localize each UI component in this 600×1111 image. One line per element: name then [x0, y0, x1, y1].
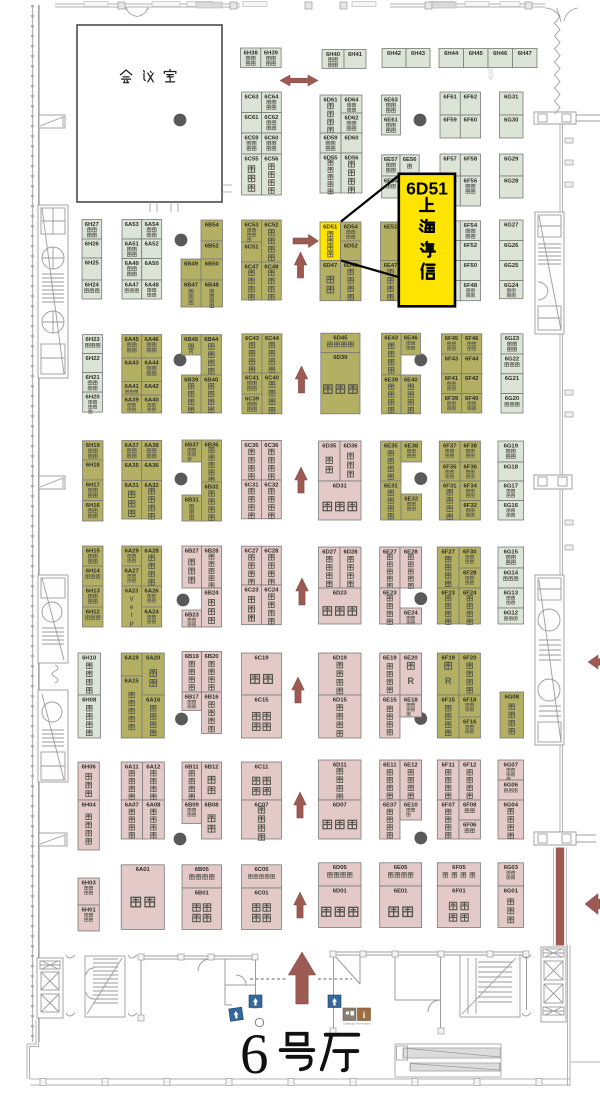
svg-text:6H40: 6H40 [326, 52, 341, 58]
svg-text:6F34: 6F34 [463, 483, 477, 489]
svg-text:6B12: 6B12 [204, 764, 219, 770]
svg-text:6D31: 6D31 [333, 483, 348, 489]
svg-text:6F52: 6F52 [464, 243, 478, 249]
svg-text:6C15: 6C15 [254, 697, 269, 703]
svg-text:6G22: 6G22 [505, 356, 520, 362]
svg-text:6H27: 6H27 [85, 222, 100, 228]
svg-text:6C55: 6C55 [244, 156, 259, 162]
svg-text:6H46: 6H46 [493, 51, 508, 57]
svg-text:6A45: 6A45 [125, 337, 140, 343]
svg-text:6A29: 6A29 [125, 548, 140, 554]
svg-text:6A37: 6A37 [125, 443, 140, 449]
svg-text:6E20: 6E20 [404, 655, 418, 661]
svg-text:6E63: 6E63 [384, 97, 398, 103]
svg-text:6F41: 6F41 [445, 376, 459, 382]
svg-text:6F11: 6F11 [442, 762, 456, 768]
svg-text:6H20: 6H20 [86, 395, 101, 401]
svg-text:6G16: 6G16 [504, 503, 519, 509]
svg-text:6C64: 6C64 [264, 94, 279, 100]
svg-text:6G03: 6G03 [504, 865, 519, 871]
svg-text:6F36: 6F36 [463, 464, 477, 470]
svg-text:6F45: 6F45 [445, 336, 459, 342]
svg-text:6H41: 6H41 [348, 52, 363, 58]
svg-text:6A11: 6A11 [125, 764, 139, 770]
svg-text:6F19: 6F19 [441, 655, 455, 661]
svg-text:6B19: 6B19 [185, 654, 200, 660]
svg-text:6H25: 6H25 [85, 260, 100, 266]
svg-text:6C62: 6C62 [264, 115, 279, 121]
svg-text:6C59: 6C59 [244, 135, 259, 141]
svg-text:6A31: 6A31 [125, 483, 140, 489]
svg-text:6D07: 6D07 [333, 802, 348, 808]
svg-text:6A07: 6A07 [125, 802, 140, 808]
svg-text:6D35: 6D35 [322, 443, 337, 449]
svg-text:6H18: 6H18 [86, 462, 101, 468]
svg-text:6G19: 6G19 [504, 443, 519, 449]
svg-text:6F30: 6F30 [463, 549, 477, 555]
svg-text:6D60: 6D60 [344, 135, 359, 141]
svg-text:6B27: 6B27 [185, 548, 200, 554]
svg-text:6C60: 6C60 [264, 135, 279, 141]
svg-text:6C48: 6C48 [264, 264, 279, 270]
svg-text:6C32: 6C32 [264, 482, 279, 488]
svg-text:6B09: 6B09 [185, 802, 200, 808]
svg-text:6B49: 6B49 [184, 261, 199, 267]
svg-text:6F01: 6F01 [452, 888, 466, 894]
svg-text:6F32: 6F32 [463, 503, 477, 509]
svg-text:6H24: 6H24 [85, 282, 100, 288]
svg-text:6A38: 6A38 [145, 443, 160, 449]
svg-text:6H17: 6H17 [86, 482, 101, 488]
svg-text:6C35: 6C35 [244, 443, 259, 449]
svg-text:6C51: 6C51 [244, 244, 259, 250]
svg-text:6A53: 6A53 [125, 222, 140, 228]
svg-text:6F61: 6F61 [443, 94, 457, 100]
svg-text:6D59: 6D59 [323, 135, 338, 141]
svg-text:6F39: 6F39 [445, 396, 459, 402]
svg-text:6G26: 6G26 [504, 243, 519, 249]
svg-text:6G12: 6G12 [504, 610, 519, 616]
svg-text:6D36: 6D36 [343, 443, 358, 449]
svg-text:6H47: 6H47 [518, 51, 533, 57]
svg-text:6A23: 6A23 [125, 588, 138, 594]
svg-text:6A08: 6A08 [146, 802, 161, 808]
svg-text:6G29: 6G29 [504, 156, 519, 162]
svg-text:6G13: 6G13 [504, 590, 519, 596]
svg-text:6F06: 6F06 [463, 822, 477, 828]
svg-text:V: V [129, 596, 134, 603]
svg-text:6A49: 6A49 [125, 261, 140, 267]
svg-text:6G31: 6G31 [504, 94, 519, 100]
svg-text:6G14: 6G14 [504, 570, 519, 576]
svg-text:6E31: 6E31 [384, 483, 398, 489]
svg-text:6H39: 6H39 [264, 50, 279, 56]
svg-text:6A51: 6A51 [125, 241, 140, 247]
svg-text:6G04: 6G04 [504, 802, 519, 808]
svg-text:6A15: 6A15 [125, 678, 140, 684]
svg-text:6A40: 6A40 [145, 398, 160, 404]
svg-text:6A27: 6A27 [125, 568, 140, 574]
svg-text:6B01: 6B01 [195, 890, 210, 896]
svg-text:6D54: 6D54 [344, 224, 359, 230]
svg-text:6H19: 6H19 [86, 443, 101, 449]
svg-text:6E10: 6E10 [404, 802, 418, 808]
svg-text:6C52: 6C52 [264, 222, 279, 228]
svg-text:6G17: 6G17 [504, 483, 519, 489]
svg-text:6A28: 6A28 [145, 548, 160, 554]
svg-text:6D62: 6D62 [344, 115, 359, 121]
svg-text:6D05: 6D05 [333, 865, 348, 871]
svg-text:l: l [131, 612, 133, 619]
svg-text:6E12: 6E12 [404, 762, 418, 768]
svg-text:6E40: 6E40 [404, 377, 418, 383]
svg-text:6C47: 6C47 [244, 264, 259, 270]
svg-text:6A44: 6A44 [145, 360, 160, 366]
svg-text:6F38: 6F38 [463, 443, 477, 449]
svg-text:6A26: 6A26 [145, 588, 160, 594]
svg-text:6B48: 6B48 [205, 282, 220, 288]
svg-text:6B31: 6B31 [185, 497, 200, 503]
svg-text:R: R [445, 676, 452, 686]
svg-text:6C01: 6C01 [254, 890, 269, 896]
svg-text:6C53: 6C53 [244, 222, 259, 228]
svg-text:6D11: 6D11 [333, 762, 347, 768]
svg-text:6E35: 6E35 [384, 443, 398, 449]
svg-text:p: p [130, 620, 134, 627]
svg-text:6F31: 6F31 [443, 483, 457, 489]
svg-text:6G23: 6G23 [505, 336, 520, 342]
svg-text:6C05: 6C05 [254, 867, 269, 873]
svg-text:6F56: 6F56 [464, 178, 478, 184]
svg-text:6A19: 6A19 [125, 655, 140, 661]
svg-text:6G25: 6G25 [504, 263, 519, 269]
svg-text:6E47: 6E47 [384, 263, 398, 269]
svg-text:6H10: 6H10 [82, 655, 97, 661]
svg-text:6G08: 6G08 [505, 694, 520, 700]
svg-text:6A35: 6A35 [125, 463, 140, 469]
svg-text:6E38: 6E38 [404, 443, 418, 449]
svg-text:6G21: 6G21 [505, 376, 520, 382]
svg-text:6D61: 6D61 [323, 97, 338, 103]
svg-text:6F50: 6F50 [464, 263, 478, 269]
svg-text:6A36: 6A36 [145, 463, 160, 469]
svg-text:6E07: 6E07 [383, 802, 397, 808]
svg-text:6E46: 6E46 [404, 336, 418, 342]
svg-text:6A43: 6A43 [125, 360, 140, 366]
svg-text:6C24: 6C24 [264, 587, 279, 593]
svg-text:6A48: 6A48 [145, 282, 160, 288]
svg-text:6A41: 6A41 [125, 384, 140, 390]
svg-text:6B24: 6B24 [204, 590, 219, 596]
svg-text:6C44: 6C44 [265, 336, 280, 342]
svg-text:6A52: 6A52 [145, 241, 160, 247]
svg-text:6C23: 6C23 [244, 587, 259, 593]
svg-text:6F58: 6F58 [464, 156, 478, 162]
svg-text:4000: 4000 [489, 66, 495, 80]
svg-text:6E11: 6E11 [383, 762, 397, 768]
svg-text:6B37: 6B37 [185, 442, 200, 448]
svg-text:6H43: 6H43 [411, 51, 426, 57]
svg-text:6D52: 6D52 [344, 243, 359, 249]
svg-text:6C39: 6C39 [245, 396, 260, 402]
svg-text:6C41: 6C41 [245, 375, 260, 381]
svg-text:6D45: 6D45 [333, 336, 348, 342]
svg-text:6D28: 6D28 [343, 549, 358, 555]
svg-text:6C61: 6C61 [244, 115, 259, 121]
svg-text:6A50: 6A50 [145, 261, 160, 267]
svg-text:6F35: 6F35 [443, 464, 457, 470]
svg-text:6E39: 6E39 [384, 377, 398, 383]
svg-text:6F08: 6F08 [463, 802, 477, 808]
svg-text:6E24: 6E24 [404, 610, 418, 616]
svg-text:6H26: 6H26 [85, 241, 100, 247]
svg-text:6A47: 6A47 [125, 282, 140, 288]
svg-text:6B47: 6B47 [184, 282, 199, 288]
svg-text:6B20: 6B20 [204, 654, 219, 660]
svg-text:6F12: 6F12 [463, 762, 477, 768]
svg-text:6D47: 6D47 [323, 263, 338, 269]
svg-text:6H06: 6H06 [82, 764, 97, 770]
svg-text:6F07: 6F07 [441, 802, 455, 808]
svg-text:6E18: 6E18 [404, 697, 418, 703]
svg-text:6B52: 6B52 [205, 243, 220, 249]
svg-text:R: R [408, 676, 415, 686]
svg-text:6F16: 6F16 [463, 719, 477, 725]
svg-text:6C11: 6C11 [255, 764, 269, 770]
svg-text:6C36: 6C36 [264, 443, 279, 449]
svg-text:6B50: 6B50 [205, 261, 220, 267]
svg-text:6B45: 6B45 [184, 337, 199, 343]
svg-text:6F44: 6F44 [465, 356, 479, 362]
svg-text:6F37: 6F37 [443, 443, 457, 449]
svg-text:6B40: 6B40 [204, 377, 219, 383]
svg-text:6B44: 6B44 [204, 337, 219, 343]
svg-text:6F57: 6F57 [443, 156, 457, 162]
svg-text:6B32: 6B32 [204, 484, 219, 490]
svg-text:6G06: 6G06 [504, 782, 519, 788]
svg-text:6A20: 6A20 [146, 655, 161, 661]
svg-text:6D64: 6D64 [344, 97, 359, 103]
svg-text:6G15: 6G15 [504, 549, 519, 555]
svg-text:6C56: 6C56 [264, 156, 279, 162]
svg-text:6E32: 6E32 [404, 496, 418, 502]
svg-text:6A16: 6A16 [146, 697, 161, 703]
svg-text:6D19: 6D19 [333, 655, 348, 661]
svg-text:6F27: 6F27 [441, 549, 455, 555]
svg-text:6G27: 6G27 [504, 222, 519, 228]
svg-text:6D01: 6D01 [333, 888, 348, 894]
svg-text:6B11: 6B11 [185, 764, 199, 770]
svg-text:6H22: 6H22 [86, 356, 101, 362]
svg-text:6: 6 [240, 1023, 269, 1086]
svg-text:6C27: 6C27 [244, 549, 259, 555]
svg-text:6B05: 6B05 [195, 867, 210, 873]
svg-text:6B54: 6B54 [205, 222, 220, 228]
svg-text:6B17: 6B17 [185, 694, 200, 700]
svg-text:6B08: 6B08 [204, 802, 219, 808]
svg-text:6E15: 6E15 [383, 697, 397, 703]
svg-text:R: R [189, 350, 194, 356]
svg-text:Catalogu Information: Catalogu Information [343, 1022, 371, 1026]
svg-text:6H42: 6H42 [387, 51, 402, 57]
svg-text:6H15: 6H15 [86, 548, 101, 554]
svg-text:6A24: 6A24 [145, 609, 160, 615]
svg-text:6H01: 6H01 [82, 907, 97, 913]
svg-text:6H23: 6H23 [86, 337, 101, 343]
svg-text:6G20: 6G20 [505, 396, 520, 402]
svg-text:6H13: 6H13 [86, 588, 101, 594]
svg-text:6H12: 6H12 [86, 609, 101, 615]
svg-text:6F20: 6F20 [463, 655, 477, 661]
svg-text:6F28: 6F28 [463, 570, 477, 576]
svg-text:e: e [130, 604, 134, 611]
svg-text:6A46: 6A46 [145, 337, 160, 343]
svg-text:6H08: 6H08 [82, 697, 97, 703]
svg-text:6F05: 6F05 [452, 865, 466, 871]
svg-text:6A54: 6A54 [145, 222, 160, 228]
svg-text:6C28: 6C28 [264, 549, 279, 555]
svg-text:6F62: 6F62 [464, 94, 478, 100]
svg-text:6F54: 6F54 [464, 223, 478, 229]
svg-text:6E51: 6E51 [384, 224, 398, 230]
svg-text:6F60: 6F60 [464, 117, 478, 123]
svg-text:6C19: 6C19 [254, 655, 269, 661]
svg-text:6D51: 6D51 [406, 179, 448, 199]
svg-text:6H44: 6H44 [444, 51, 459, 57]
svg-text:6F59: 6F59 [443, 117, 457, 123]
svg-text:6C40: 6C40 [265, 375, 280, 381]
svg-text:6G07: 6G07 [504, 762, 519, 768]
svg-text:6E01: 6E01 [394, 888, 408, 894]
svg-text:6E61: 6E61 [384, 117, 398, 123]
svg-text:6A12: 6A12 [146, 764, 161, 770]
svg-text:6H21: 6H21 [86, 375, 101, 381]
svg-text:6E56: 6E56 [403, 157, 417, 163]
svg-text:6F15: 6F15 [441, 697, 455, 703]
svg-text:6B39: 6B39 [184, 377, 199, 383]
svg-text:6F40: 6F40 [465, 396, 479, 402]
svg-text:6A39: 6A39 [125, 398, 140, 404]
svg-text:6B16: 6B16 [204, 694, 219, 700]
svg-text:6E19: 6E19 [383, 655, 397, 661]
svg-text:6B23: 6B23 [185, 612, 200, 618]
svg-text:6G28: 6G28 [504, 178, 519, 184]
svg-text:6E57: 6E57 [384, 157, 398, 163]
svg-text:6H45: 6H45 [469, 51, 484, 57]
svg-text:6G24: 6G24 [504, 283, 519, 289]
svg-text:6D56: 6D56 [344, 155, 359, 161]
svg-text:6B28: 6B28 [204, 548, 219, 554]
svg-text:6D15: 6D15 [333, 697, 348, 703]
svg-text:6D23: 6D23 [333, 590, 348, 596]
svg-text:6H03: 6H03 [82, 880, 97, 886]
svg-text:6H38: 6H38 [244, 50, 259, 56]
svg-text:6D39: 6D39 [333, 355, 348, 361]
svg-text:6H04: 6H04 [82, 802, 97, 808]
svg-text:6H16: 6H16 [86, 503, 101, 509]
svg-text:6F48: 6F48 [464, 283, 478, 289]
svg-text:6G18: 6G18 [504, 464, 519, 470]
svg-text:6G30: 6G30 [504, 117, 519, 123]
svg-text:6D27: 6D27 [322, 549, 337, 555]
svg-text:6H14: 6H14 [86, 568, 101, 574]
svg-text:6D51: 6D51 [323, 225, 338, 231]
svg-text:6F46: 6F46 [465, 336, 479, 342]
svg-text:6F42: 6F42 [465, 376, 479, 382]
svg-text:6C31: 6C31 [244, 482, 259, 488]
svg-text:6G01: 6G01 [504, 888, 519, 894]
svg-text:6A01: 6A01 [136, 867, 151, 873]
svg-text:6E05: 6E05 [394, 865, 408, 871]
svg-text:6E43: 6E43 [384, 336, 398, 342]
svg-text:6F18: 6F18 [463, 697, 477, 703]
svg-text:6C63: 6C63 [244, 94, 259, 100]
svg-text:6C43: 6C43 [245, 336, 260, 342]
svg-text:6A42: 6A42 [145, 384, 160, 390]
svg-text:6F43: 6F43 [445, 356, 459, 362]
